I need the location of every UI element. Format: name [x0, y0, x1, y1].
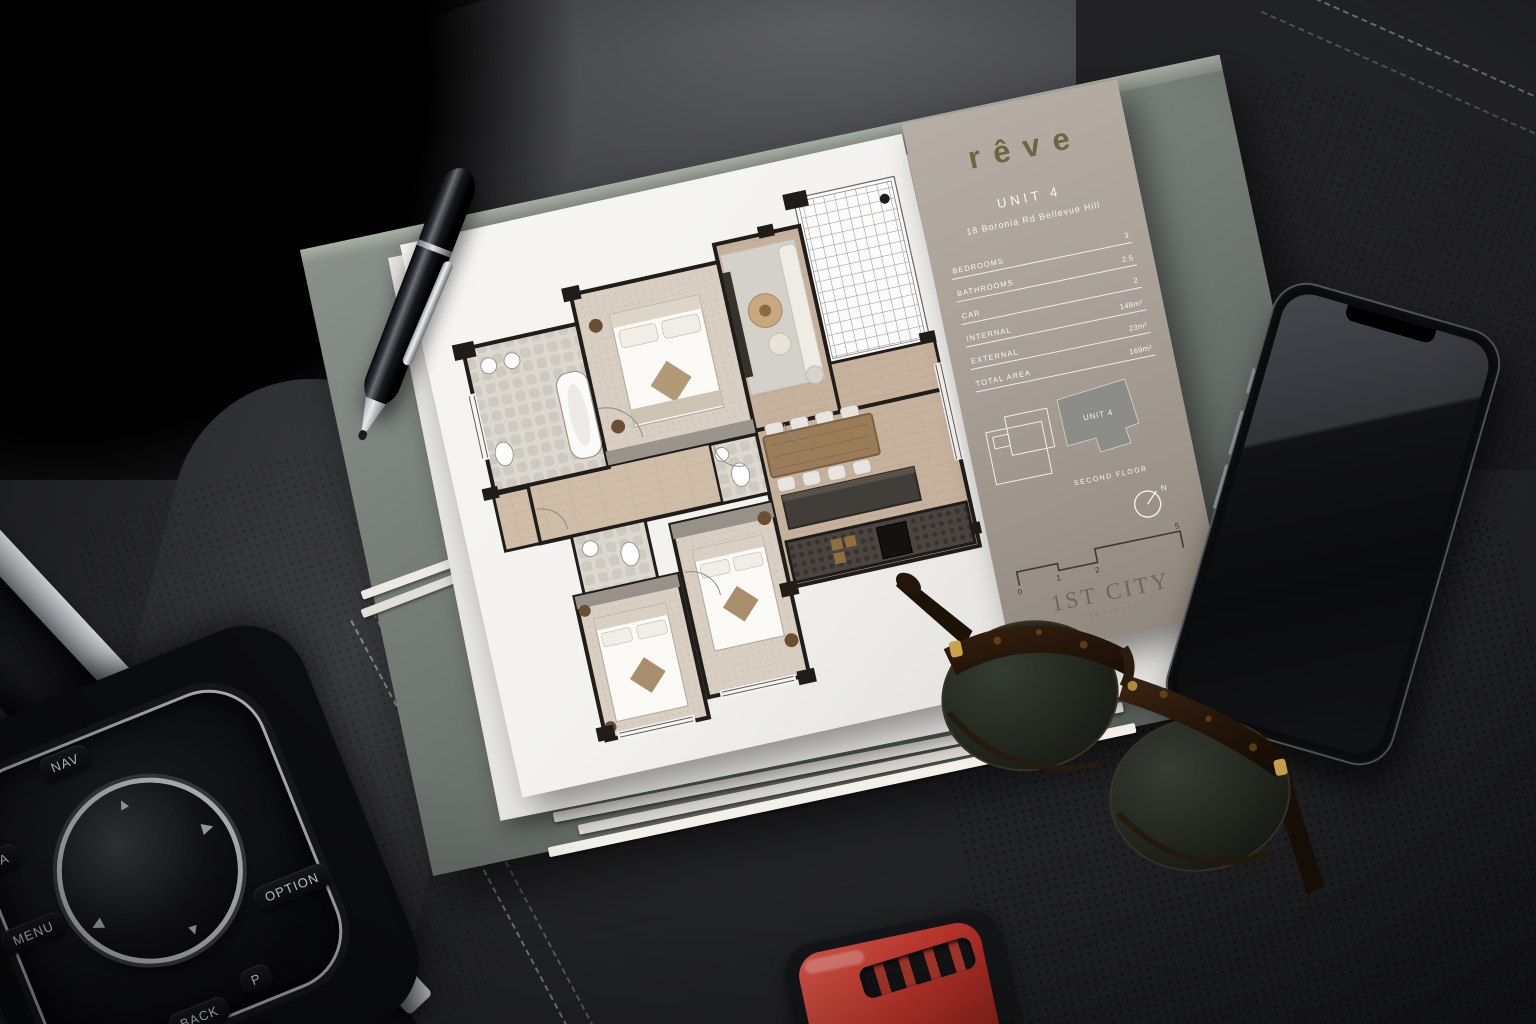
spec-table: BEDROOMS 3 BATHROOMS 2.5 CAR 2 INTERNAL …: [948, 220, 1156, 392]
seatbelt-buckle: [781, 905, 1019, 1024]
spec-value: 3: [1123, 230, 1129, 240]
arrow-right-icon: ▶: [200, 816, 216, 836]
spec-value: 2: [1133, 275, 1139, 285]
arrow-down-icon: ▼: [184, 920, 203, 941]
scale-tick: 5: [1174, 521, 1181, 531]
spec-value: 2.5: [1121, 253, 1134, 264]
spec-value: 23m²: [1128, 320, 1148, 333]
arrow-up-icon: ▲: [113, 793, 134, 815]
spec-label: CAR: [961, 308, 982, 321]
pen-point: [357, 429, 368, 441]
compass-n-label: N: [1160, 483, 1168, 493]
arrow-left-icon: ◀: [87, 913, 106, 934]
sunglasses: [854, 524, 1378, 937]
spec-label: TOTAL AREA: [975, 368, 1032, 388]
car-seat-photo-scene: ▲ ▶ ◀ ▼ MEDIA NAV MENU BACK P OPTION: [0, 0, 1536, 1024]
spec-value: 148m²: [1119, 298, 1144, 312]
spec-value: 169m²: [1128, 343, 1153, 357]
